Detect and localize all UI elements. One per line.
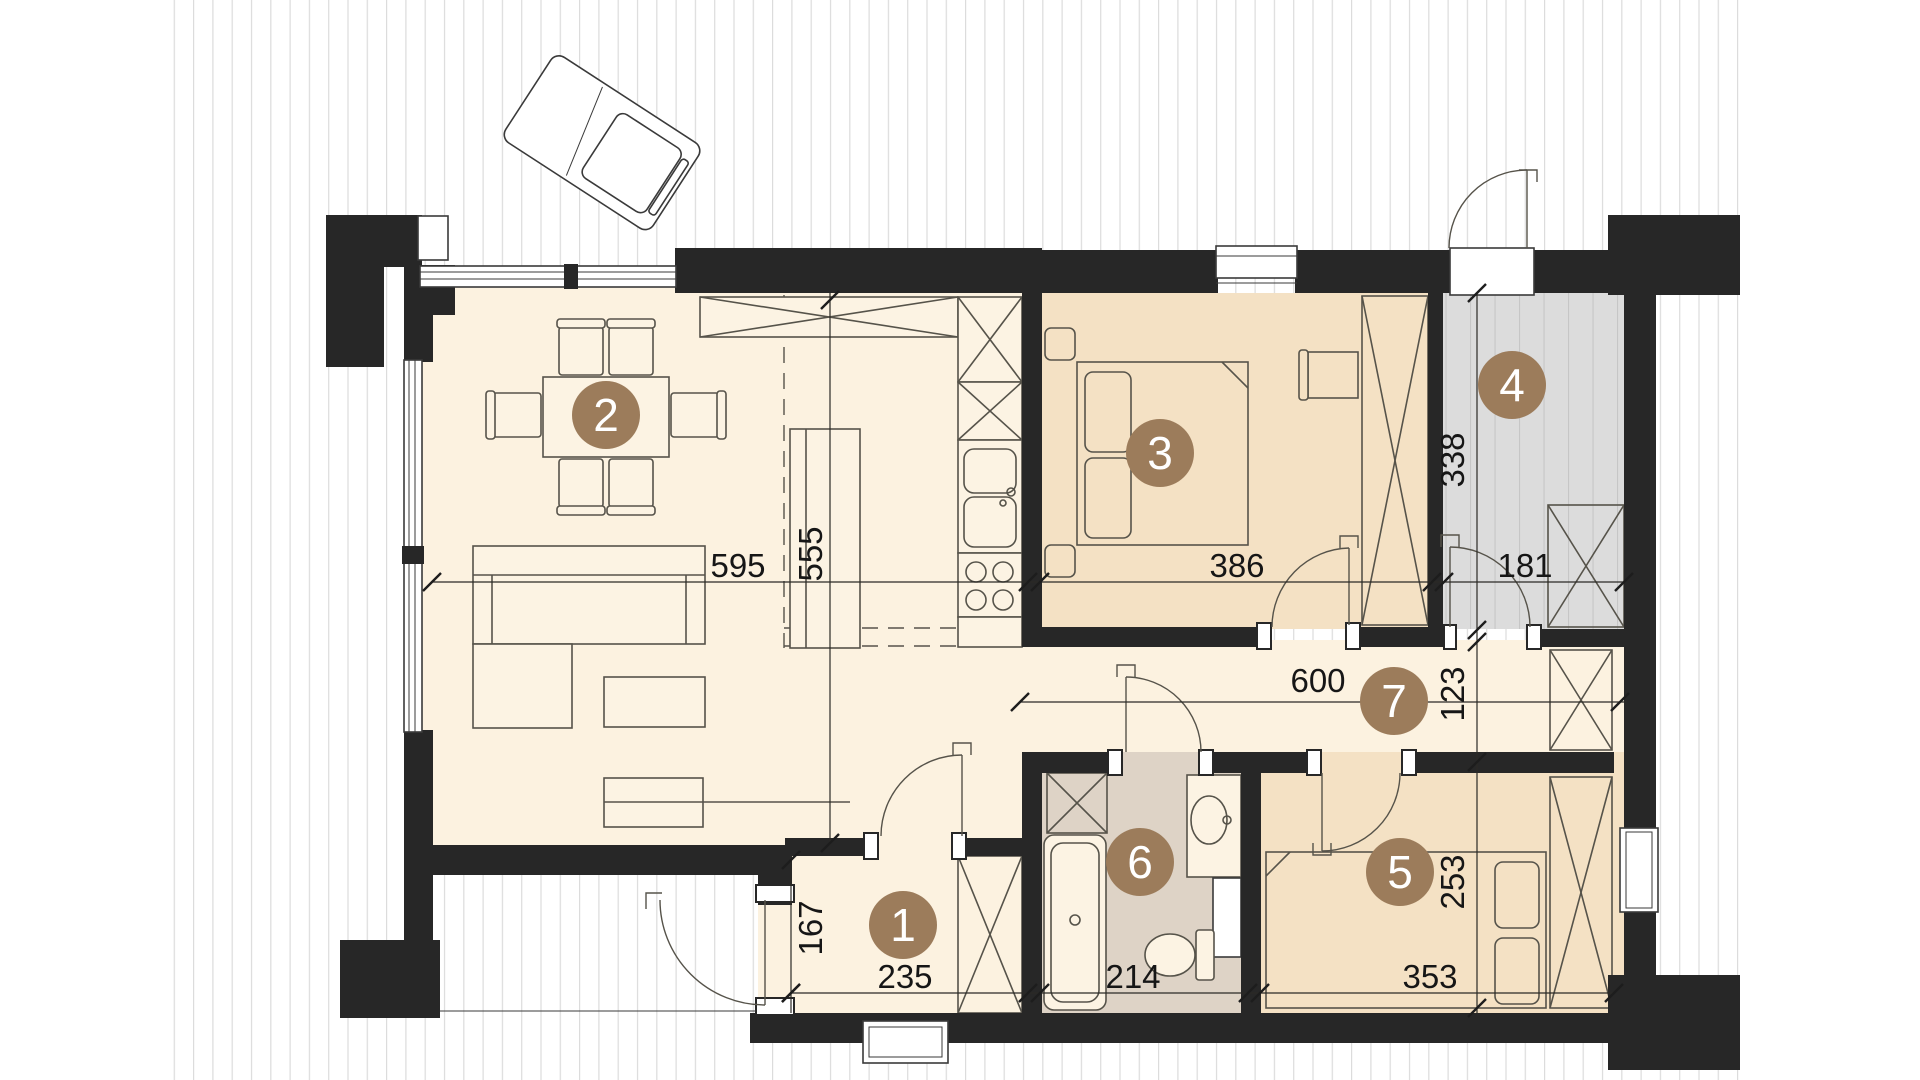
pier-top-right bbox=[1608, 215, 1740, 295]
dim-label-bedroom5-height: 253 bbox=[1434, 854, 1471, 909]
floorplan-canvas: 595 555 386 338 181 600 123 167 235 214 … bbox=[0, 0, 1920, 1080]
svg-text:2: 2 bbox=[593, 389, 619, 441]
sink-basin bbox=[964, 497, 1016, 547]
room-marker-7: 7 bbox=[1360, 667, 1428, 735]
nightstand bbox=[1045, 328, 1075, 360]
glazing-mullion bbox=[564, 264, 578, 289]
dim-label-bedroom5-width: 353 bbox=[1402, 958, 1457, 995]
dim-label-hall-width: 600 bbox=[1290, 662, 1345, 699]
living-top-glazing bbox=[420, 266, 676, 287]
room-marker-3: 3 bbox=[1126, 419, 1194, 487]
pier-bottom-right bbox=[1608, 975, 1740, 1070]
pillow bbox=[1495, 862, 1539, 928]
desk-chair bbox=[1308, 352, 1358, 398]
bathtub bbox=[1044, 835, 1106, 1010]
dim-label-bath-width: 214 bbox=[1105, 958, 1160, 995]
svg-text:3: 3 bbox=[1147, 427, 1173, 479]
pillow bbox=[1085, 372, 1131, 452]
room-marker-6: 6 bbox=[1106, 828, 1174, 896]
svg-text:5: 5 bbox=[1387, 846, 1413, 898]
dim-label-bedroom3-width: 386 bbox=[1209, 547, 1264, 584]
stove bbox=[958, 553, 1022, 617]
room-marker-5: 5 bbox=[1366, 838, 1434, 906]
dim-label-living-width: 595 bbox=[710, 547, 765, 584]
glazing-mullion bbox=[402, 546, 424, 564]
dim-label-room1-height: 167 bbox=[792, 900, 829, 955]
nightstand bbox=[1045, 545, 1075, 577]
svg-text:7: 7 bbox=[1381, 675, 1407, 727]
room-marker-4: 4 bbox=[1478, 351, 1546, 419]
floor-plan: 595 555 386 338 181 600 123 167 235 214 … bbox=[0, 0, 1920, 1080]
pillow bbox=[1085, 458, 1131, 538]
dim-label-terrace-height: 338 bbox=[1434, 432, 1471, 487]
coffee-table bbox=[604, 677, 705, 727]
toilet-tank bbox=[1196, 930, 1214, 980]
shower-screen bbox=[1213, 878, 1241, 957]
dim-label-living-height: 555 bbox=[792, 526, 829, 581]
terrace-doorway bbox=[1450, 248, 1534, 295]
dim-label-hall-height: 123 bbox=[1434, 666, 1471, 721]
svg-text:1: 1 bbox=[890, 899, 916, 951]
sofa-chaise bbox=[473, 644, 572, 728]
bedroom3-window bbox=[1216, 246, 1297, 278]
svg-text:4: 4 bbox=[1499, 359, 1525, 411]
room-marker-1: 1 bbox=[869, 891, 937, 959]
room-marker-2: 2 bbox=[572, 381, 640, 449]
kitchen-counter-end bbox=[958, 617, 1022, 647]
sink-basin bbox=[964, 449, 1016, 493]
dim-label-terrace-width: 181 bbox=[1497, 547, 1552, 584]
hallway-floor bbox=[1020, 640, 1626, 759]
vanity bbox=[1187, 775, 1241, 877]
dim-label-room1-width: 235 bbox=[877, 958, 932, 995]
pier-bottom-left bbox=[340, 940, 440, 1018]
corner-window bbox=[418, 216, 448, 260]
pillow bbox=[1495, 938, 1539, 1004]
svg-text:6: 6 bbox=[1127, 836, 1153, 888]
